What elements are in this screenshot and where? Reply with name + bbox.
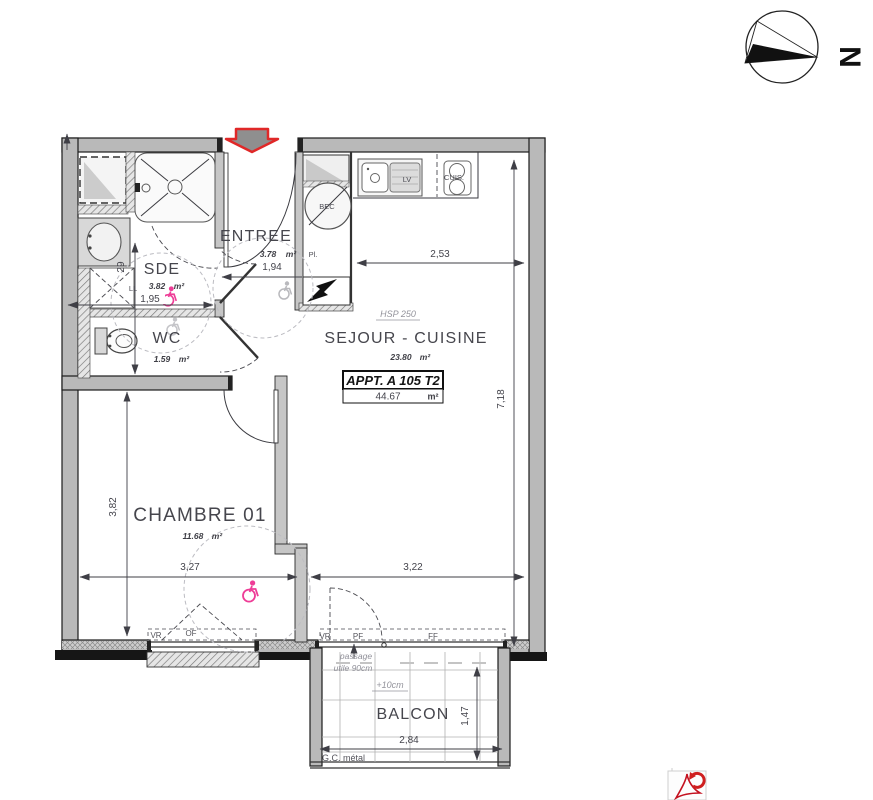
dishwasher-label: LV [403,175,412,184]
level-note: +10cm [376,680,404,690]
sde-door-leaf [220,264,256,303]
toilet-tank [95,328,107,354]
entree-label: ENTREE [220,228,292,245]
kitchen-counter: LV CUIS. [353,152,478,198]
closet-and-water-heater: BEC Pl. [303,155,351,305]
chambre-of-label: OF [185,629,196,638]
door-jamb [298,138,303,152]
dim-sejour-width: 3,22 [403,562,423,573]
apartment-title-block: APPT. A 105 T2 44.67 m² [343,371,443,403]
footing-edge [253,652,318,660]
sejour-area: 23.80 [389,352,412,362]
water-heater-label: BEC [319,202,335,211]
wc-door-leaf [220,317,258,358]
hsp-note: HSP 250 [380,309,416,319]
wc-area: 1.59 [154,354,171,364]
chambre-area: 11.68 [183,531,204,541]
apartment-area: 44.67 [375,392,400,403]
floor-plan-page: LL BEC Pl. LV CUIS. [0,0,873,800]
window-swing [162,604,242,640]
passage-note-1: passage [339,651,372,661]
svg-text:m²: m² [286,249,298,259]
north-label: N [833,46,866,68]
entrance-door-leaf [224,153,228,267]
svg-text:m²: m² [174,281,186,291]
dim-balcon-depth: 1,47 [460,706,471,726]
svg-text:m²: m² [420,352,432,362]
sde-label: SDE [144,261,181,278]
dim-chambre-height: 3,82 [108,497,119,517]
dim-chambre-width: 3,27 [180,562,200,573]
sejour-label: SEJOUR - CUISINE [324,330,487,347]
wheelchair-icon-chambre [243,580,258,601]
cooker-label: CUIS. [444,173,464,182]
balcon-ff-label: FF [428,632,438,641]
balcon-vr-label: VR [319,632,330,641]
wc-label: WC [152,330,181,347]
svg-text:m²: m² [179,354,191,364]
dim-sejour-height: 7,18 [496,389,507,409]
sde-area: 3.82 [149,281,166,291]
sink-bowl [362,163,388,192]
dim-kitchen-width: 2,53 [430,249,450,260]
entrance-arrow [226,129,278,152]
chambre-label: CHAMBRE 01 [133,505,266,526]
washer-label: LL [129,284,137,293]
compass: N [745,11,866,83]
insulation-strip [255,641,318,649]
shower-door-handle [142,184,150,192]
chambre-door-swing [224,390,277,443]
washbasin [87,223,121,261]
chambre-door-leaf [274,390,278,443]
passage-note-2: utile 90cm [334,663,373,673]
entree-area: 3.78 [260,249,277,259]
balcon-label: BALCON [377,706,450,723]
balcon-pf-label: PF [353,632,363,641]
dim-sde-side: 29 [116,261,127,273]
footing-edge [55,650,152,660]
door-jamb [217,138,222,152]
closet-label: Pl. [309,250,318,259]
sde-wc-wall [78,309,215,317]
pdf-file-icon[interactable] [668,768,706,800]
svg-text:m²: m² [428,392,439,402]
svg-text:m²: m² [212,531,224,541]
apartment-id: APPT. A 105 T2 [345,373,440,388]
window-sill [147,652,259,667]
floor-plan-drawing: LL BEC Pl. LV CUIS. [0,0,873,800]
wc-door-swing [220,358,258,372]
chambre-vr-label: VR [150,631,161,640]
dim-sde-width: 1,95 [140,294,160,305]
dim-entree-width: 1,94 [262,262,282,273]
wheelchair-icon-entree [279,281,292,299]
insulation-strip [62,641,150,649]
structure-note: G.C. métal [322,753,365,763]
dim-balcon-width: 2,84 [399,735,419,746]
